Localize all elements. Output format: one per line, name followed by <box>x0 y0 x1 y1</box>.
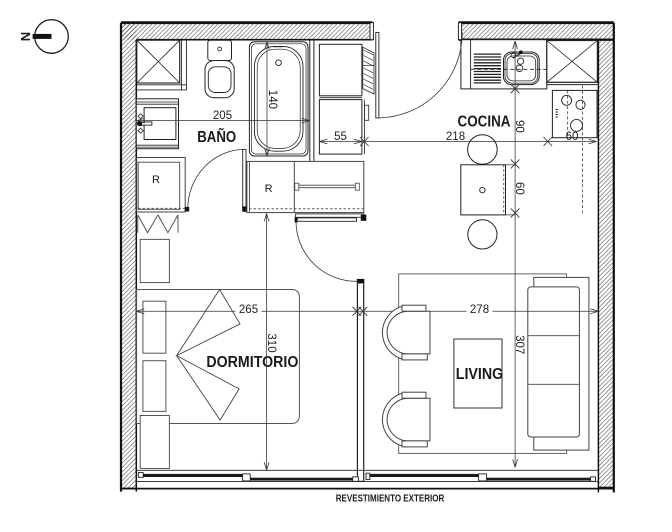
svg-text:REVESTIMIENTO EXTERIOR: REVESTIMIENTO EXTERIOR <box>336 494 445 505</box>
svg-text:DORMITORIO: DORMITORIO <box>206 354 298 371</box>
svg-text:90: 90 <box>513 120 525 133</box>
svg-text:N: N <box>18 32 33 41</box>
svg-text:218: 218 <box>446 131 465 143</box>
svg-text:55: 55 <box>334 131 347 143</box>
svg-text:60: 60 <box>513 182 525 195</box>
svg-text:265: 265 <box>239 304 258 316</box>
svg-text:307: 307 <box>513 335 525 354</box>
svg-text:205: 205 <box>213 110 232 122</box>
svg-text:BAÑO: BAÑO <box>197 128 236 146</box>
svg-text:COCINA: COCINA <box>458 113 511 130</box>
svg-text:LIVING: LIVING <box>456 366 504 383</box>
svg-text:60: 60 <box>566 131 579 143</box>
svg-text:278: 278 <box>470 304 489 316</box>
svg-text:140: 140 <box>266 90 278 109</box>
svg-text:R: R <box>265 183 273 195</box>
svg-text:310: 310 <box>265 333 277 352</box>
svg-text:R: R <box>152 174 160 186</box>
